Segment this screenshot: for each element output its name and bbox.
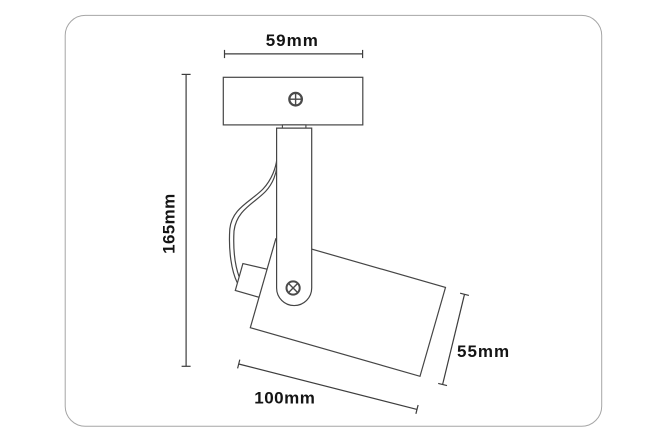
svg-text:55mm: 55mm — [457, 342, 510, 361]
svg-text:100mm: 100mm — [254, 388, 315, 407]
svg-text:165mm: 165mm — [160, 193, 179, 254]
svg-text:59mm: 59mm — [266, 31, 319, 50]
